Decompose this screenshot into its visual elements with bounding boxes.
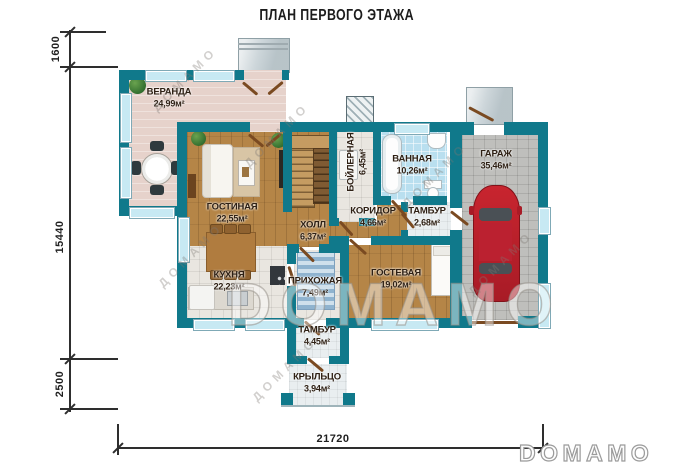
chair <box>150 185 164 195</box>
room-name: ГОСТЕВАЯ <box>371 269 421 280</box>
window <box>246 320 284 330</box>
room-label-boiler: БОЙЛЕРНАЯ6,45м² <box>347 132 368 191</box>
domamo-logo: DOMAMO <box>519 440 653 467</box>
dimension-21720: 21720 <box>316 433 349 445</box>
room-area: 4,66м² <box>350 217 395 227</box>
room-label-bathroom: ВАННАЯ10,26м² <box>392 155 431 176</box>
dimension-extension <box>117 424 119 455</box>
window <box>121 148 131 198</box>
room-area: 4,45м² <box>298 336 336 346</box>
wall <box>329 356 349 364</box>
wall <box>460 122 474 135</box>
room-name: ГОСТИНАЯ <box>207 203 258 214</box>
room-label-kitchen: КУХНЯ22,23м² <box>214 271 245 292</box>
wall <box>450 132 462 208</box>
round-table <box>141 153 173 185</box>
wall <box>329 132 337 226</box>
wall <box>413 196 447 205</box>
page-title-text: ПЛАН ПЕРВОГО ЭТАЖА <box>260 7 415 25</box>
room-label-tambour-entry: ТАМБУР4,45м² <box>298 326 336 347</box>
car-mirror <box>517 206 522 215</box>
window <box>194 71 234 81</box>
room-name: ПРИХОЖАЯ <box>288 277 342 288</box>
room-name: ТАМБУР <box>298 326 336 337</box>
wall <box>283 132 292 212</box>
dimension-line <box>118 447 544 449</box>
garage-gate <box>472 321 518 324</box>
room-name: ХОЛЛ <box>300 221 326 232</box>
bathroom-sink <box>427 133 446 149</box>
room-label-guest: ГОСТЕВАЯ19,02м² <box>371 269 421 290</box>
chimney-block <box>346 96 374 125</box>
room-area: 24,99м² <box>147 98 192 108</box>
room-area: 22,23м² <box>214 281 245 291</box>
room-name: ТАМБУР <box>408 207 446 218</box>
step-line <box>238 43 288 45</box>
coffee-table-top <box>242 167 249 177</box>
room-label-veranda: ВЕРАНДА24,99м² <box>147 88 192 109</box>
window <box>395 124 429 134</box>
window <box>179 218 189 262</box>
fridge <box>189 285 215 310</box>
room-area: 7,49м² <box>288 287 342 297</box>
car-windshield <box>479 208 512 221</box>
kitchen-sink <box>227 291 248 306</box>
wall <box>373 132 381 204</box>
wall <box>450 316 472 328</box>
room-name: ВАННАЯ <box>392 155 431 166</box>
room-area: 3,94м² <box>293 383 341 393</box>
window <box>539 208 550 234</box>
page-title: ПЛАН ПЕРВОГО ЭТАЖА <box>0 7 674 25</box>
wall <box>371 236 461 245</box>
room-label-hallway: ПРИХОЖАЯ7,49м² <box>288 277 342 298</box>
car-roof <box>479 223 512 261</box>
room-label-porch: КРЫЛЬЦО3,94м² <box>293 373 341 394</box>
wall <box>329 218 339 226</box>
room-area: 2,68м² <box>408 217 446 227</box>
chair <box>224 224 237 234</box>
window <box>146 71 186 81</box>
room-area: 10,26м² <box>392 165 431 175</box>
step-line <box>238 48 288 50</box>
cabinet <box>188 174 196 198</box>
wall <box>287 246 296 264</box>
room-label-garage: ГАРАЖ35,46м² <box>480 150 512 171</box>
chair <box>238 224 251 234</box>
chair <box>131 161 141 175</box>
room-label-hall: ХОЛЛ6,37м² <box>300 221 326 242</box>
room-name: КУХНЯ <box>214 271 245 282</box>
chair <box>210 224 223 234</box>
dimension-1600: 1600 <box>50 36 62 62</box>
wall <box>319 244 342 253</box>
room-label-tambour-garage: ТАМБУР2,68м² <box>408 207 446 228</box>
room-name: КРЫЛЬЦО <box>293 373 341 384</box>
wall <box>373 196 391 205</box>
door-opening <box>250 122 280 132</box>
car-mirror <box>469 206 474 215</box>
floor-plan: ПЛАН ПЕРВОГО ЭТАЖА <box>0 0 674 470</box>
porch-edge <box>281 405 355 407</box>
room-area: 6,37м² <box>300 231 326 241</box>
window <box>194 320 234 330</box>
room-name: БОЙЛЕРНАЯ <box>347 132 358 191</box>
window <box>130 208 174 218</box>
wall <box>287 356 307 364</box>
room-label-corridor: КОРИДОР4,66м² <box>350 207 395 228</box>
car-rear-window <box>479 263 512 274</box>
door-opening <box>244 70 282 80</box>
room-area: 19,02м² <box>371 279 421 289</box>
dimension-line <box>69 30 71 412</box>
dimension-2500: 2500 <box>54 371 66 397</box>
room-area: 6,45м² <box>357 132 367 191</box>
stove <box>270 266 285 285</box>
window <box>372 320 438 330</box>
sofa <box>202 144 233 198</box>
dining-table <box>206 232 256 272</box>
room-area: 35,46м² <box>480 160 512 170</box>
window <box>121 94 131 142</box>
room-name: ГАРАЖ <box>480 150 512 161</box>
stairs-flight <box>291 148 315 208</box>
room-name: КОРИДОР <box>350 207 395 218</box>
window <box>539 284 550 328</box>
room-name: ВЕРАНДА <box>147 88 192 99</box>
chair <box>150 141 164 151</box>
dimension-15440: 15440 <box>54 220 66 253</box>
room-label-living: ГОСТИНАЯ22,55м² <box>207 203 258 224</box>
room-area: 22,55м² <box>207 213 258 223</box>
